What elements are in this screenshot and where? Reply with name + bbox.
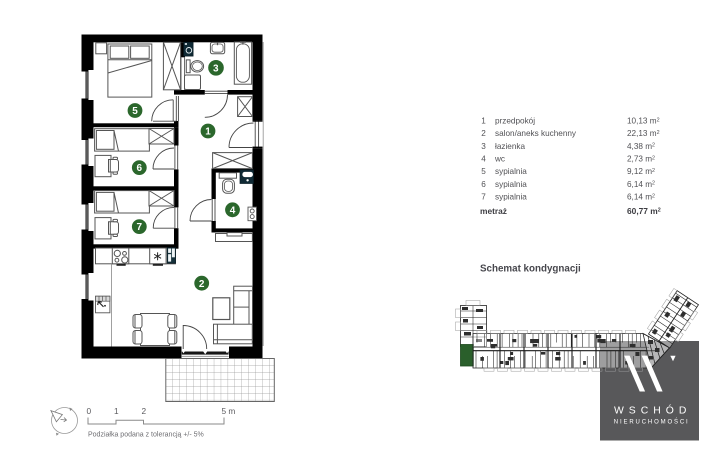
svg-text:2: 2 xyxy=(142,406,147,416)
svg-text:łazienka: łazienka xyxy=(495,142,525,151)
svg-text:5: 5 xyxy=(132,106,138,117)
svg-text:Schemat kondygnacji: Schemat kondygnacji xyxy=(480,263,581,274)
svg-text:4: 4 xyxy=(230,205,236,216)
svg-text:sypialnia: sypialnia xyxy=(495,193,527,202)
svg-text:2: 2 xyxy=(199,279,205,290)
svg-text:60,77 m2: 60,77 m2 xyxy=(627,206,661,216)
svg-text:2: 2 xyxy=(481,129,486,138)
svg-text:4,38 m2: 4,38 m2 xyxy=(627,142,655,151)
svg-text:6,14 m2: 6,14 m2 xyxy=(627,180,655,189)
svg-text:22,13 m2: 22,13 m2 xyxy=(627,129,660,138)
svg-text:1: 1 xyxy=(481,117,486,126)
svg-text:metraż: metraż xyxy=(480,206,507,216)
svg-text:4: 4 xyxy=(481,155,486,164)
svg-text:7: 7 xyxy=(137,222,143,233)
svg-text:7: 7 xyxy=(481,193,486,202)
svg-text:3: 3 xyxy=(213,64,219,75)
svg-text:przedpokój: przedpokój xyxy=(495,117,535,126)
svg-text:2,73 m2: 2,73 m2 xyxy=(627,155,655,164)
svg-text:6: 6 xyxy=(481,180,486,189)
svg-text:5 m: 5 m xyxy=(222,406,236,416)
svg-text:sypialnia: sypialnia xyxy=(495,167,527,176)
svg-text:0: 0 xyxy=(87,406,92,416)
svg-text:1: 1 xyxy=(114,406,119,416)
svg-text:6: 6 xyxy=(137,163,143,174)
svg-text:9,12 m2: 9,12 m2 xyxy=(627,167,655,176)
svg-text:10,13 m2: 10,13 m2 xyxy=(627,117,660,126)
svg-text:sypialnia: sypialnia xyxy=(495,180,527,189)
svg-text:Podziałka podana z tolerancją: Podziałka podana z tolerancją +/- 5% xyxy=(88,432,204,439)
svg-text:salon/aneks kuchenny: salon/aneks kuchenny xyxy=(495,129,577,138)
svg-text:5: 5 xyxy=(481,167,486,176)
svg-text:3: 3 xyxy=(481,142,486,151)
svg-text:1: 1 xyxy=(205,127,211,138)
svg-text:WSCHÓD: WSCHÓD xyxy=(614,403,691,416)
svg-text:6,14 m2: 6,14 m2 xyxy=(627,193,655,202)
svg-text:wc: wc xyxy=(494,155,505,164)
svg-text:NIERUCHOMOŚCI: NIERUCHOMOŚCI xyxy=(614,417,690,425)
